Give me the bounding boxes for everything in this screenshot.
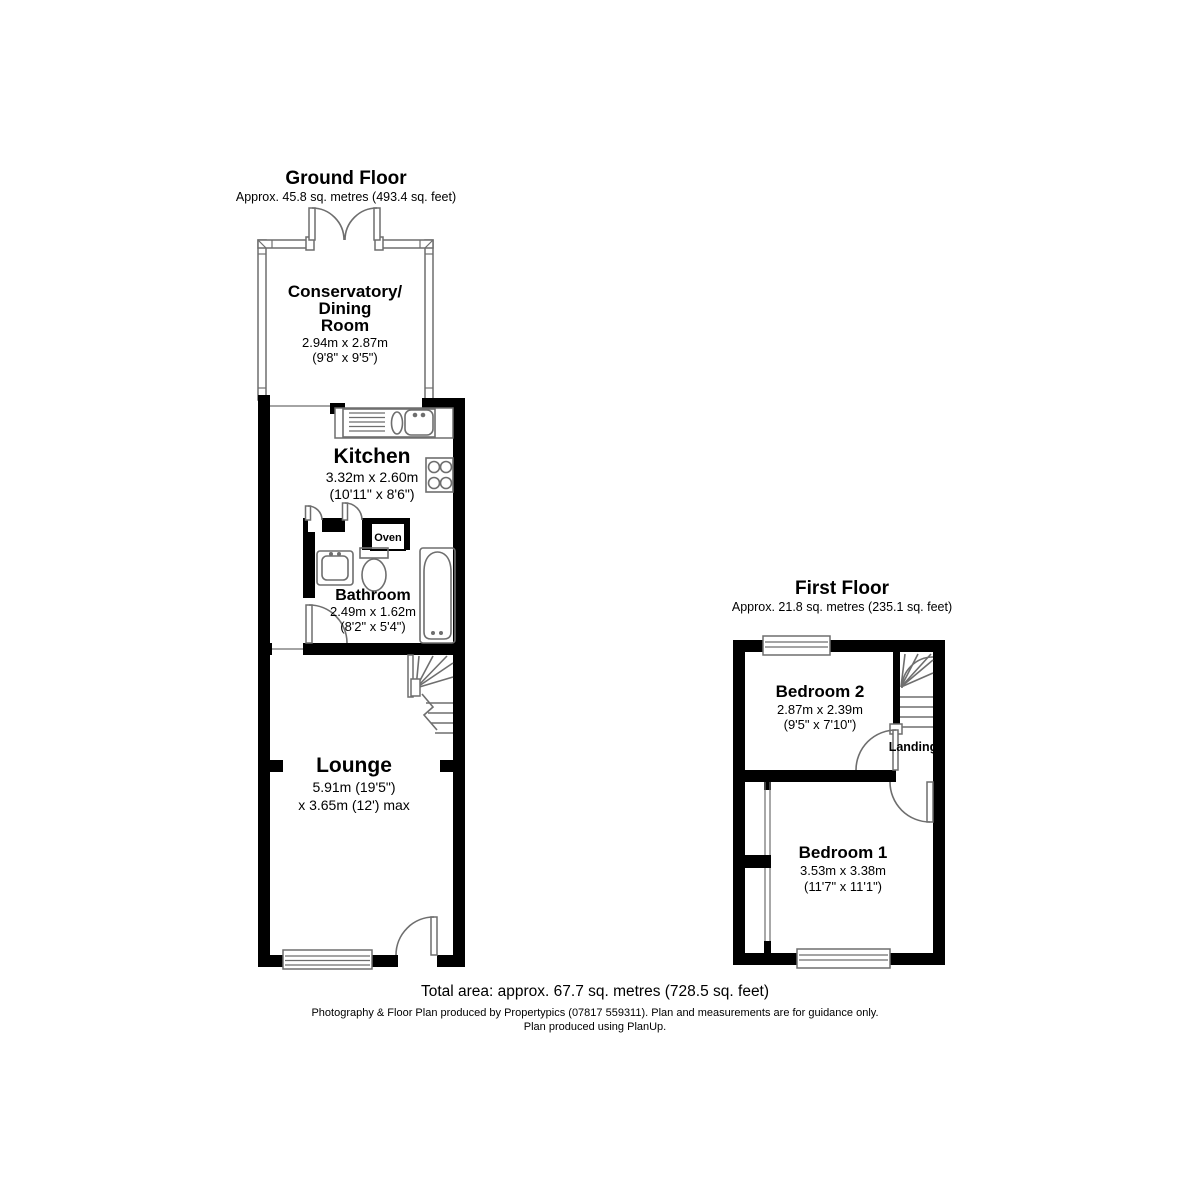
credit-text: Photography & Floor Plan produced by Pro… — [311, 1007, 878, 1019]
basin-fixture — [317, 551, 353, 585]
ground-floor-title: Ground Floor — [285, 168, 407, 189]
total-area-text: Total area: approx. 67.7 sq. metres (728… — [421, 983, 769, 1000]
lounge-label: Lounge — [316, 754, 392, 777]
bedroom1-door-swing — [890, 782, 933, 822]
ground-floor-plan: Oven — [236, 168, 465, 969]
bathroom-dims-m: 2.49m x 1.62m — [330, 604, 416, 619]
kitchen-door-swings — [306, 503, 363, 520]
staircase-ground — [408, 655, 453, 733]
conservatory-dims-ft: (9'8" x 9'5") — [312, 350, 378, 365]
lounge-dims-max: x 3.65m (12') max — [298, 797, 410, 813]
kitchen-dims-ft: (10'11" x 8'6") — [329, 486, 414, 502]
hob-fixture — [426, 458, 453, 492]
bedroom1-window — [797, 949, 890, 968]
bathroom-label: Bathroom — [335, 587, 411, 604]
oven-recess: Oven — [371, 523, 405, 550]
lounge-dims-m: 5.91m (19'5") — [312, 779, 395, 795]
french-doors — [309, 208, 380, 240]
first-floor-title: First Floor — [795, 578, 890, 599]
bedroom1-dims-m: 3.53m x 3.38m — [800, 863, 886, 878]
first-floor-area: Approx. 21.8 sq. metres (235.1 sq. feet) — [732, 600, 952, 614]
bedroom2-dims-m: 2.87m x 2.39m — [777, 702, 863, 717]
sink-counter-fixture — [335, 408, 453, 438]
bath-fixture — [420, 548, 455, 643]
footer: Total area: approx. 67.7 sq. metres (728… — [311, 983, 878, 1033]
landing-label: Landing — [889, 740, 938, 754]
bedroom2-dims-ft: (9'5" x 7'10") — [784, 717, 857, 732]
bedroom1-dims-ft: (11'7" x 11'1") — [804, 879, 882, 894]
software-text: Plan produced using PlanUp. — [524, 1021, 666, 1033]
floorplan-drawing: Oven — [0, 0, 1200, 1200]
conservatory-label-3: Room — [321, 316, 369, 335]
oven-label: Oven — [374, 532, 402, 544]
ground-floor-area: Approx. 45.8 sq. metres (493.4 sq. feet) — [236, 190, 456, 204]
floorplan-page: Oven — [0, 0, 1200, 1200]
kitchen-dims-m: 3.32m x 2.60m — [326, 469, 419, 485]
kitchen-label: Kitchen — [333, 445, 410, 468]
toilet-fixture — [360, 548, 388, 591]
conservatory-dims-m: 2.94m x 2.87m — [302, 335, 388, 350]
lounge-window — [283, 950, 372, 969]
bedroom2-label: Bedroom 2 — [776, 682, 865, 701]
first-floor-plan: First Floor Approx. 21.8 sq. metres (235… — [732, 578, 952, 968]
bedroom2-window — [763, 636, 830, 655]
bedroom1-label: Bedroom 1 — [799, 843, 888, 862]
front-door-swing — [396, 917, 437, 955]
bathroom-dims-ft: (8'2" x 5'4") — [340, 619, 406, 634]
